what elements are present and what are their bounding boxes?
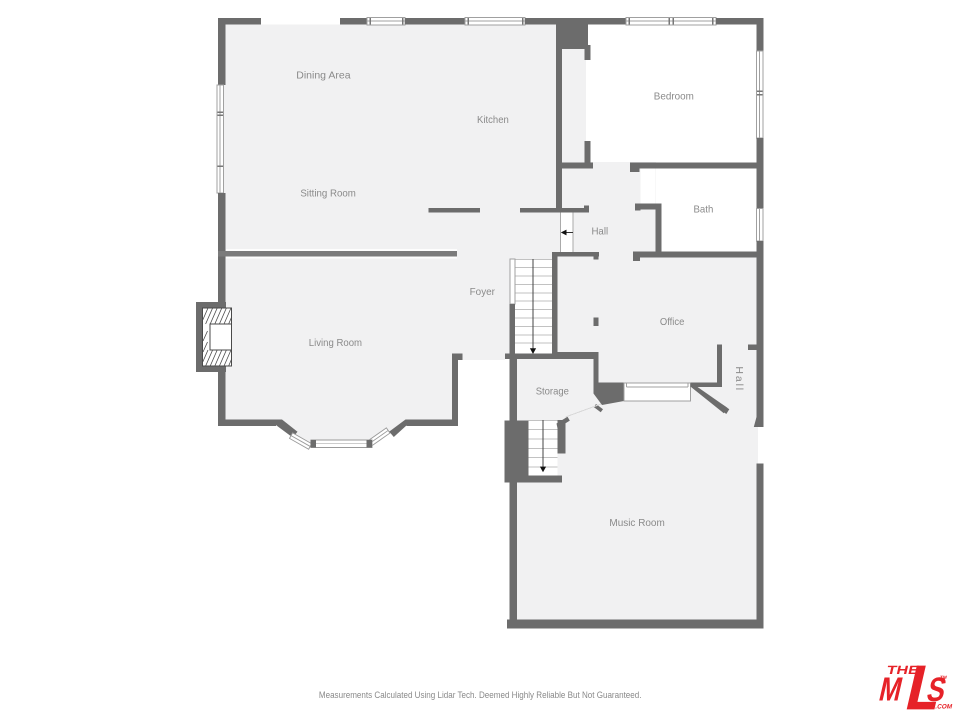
svg-text:Measurements Calculated Using: Measurements Calculated Using Lidar Tech… (319, 690, 642, 700)
svg-text:.COM: .COM (935, 703, 953, 710)
svg-text:Living Room: Living Room (309, 337, 363, 349)
svg-text:Hall: Hall (733, 366, 745, 392)
svg-text:TM: TM (939, 675, 947, 681)
svg-text:Music Room: Music Room (609, 517, 665, 529)
svg-text:Kitchen: Kitchen (477, 114, 509, 126)
svg-text:Foyer: Foyer (470, 286, 496, 298)
svg-text:Dining Area: Dining Area (296, 70, 350, 82)
svg-text:Bath: Bath (694, 204, 714, 216)
svg-text:Sitting Room: Sitting Room (300, 188, 356, 200)
svg-text:Storage: Storage (536, 386, 569, 398)
svg-text:Hall: Hall (591, 226, 608, 238)
svg-text:Bedroom: Bedroom (654, 90, 694, 102)
svg-text:Office: Office (660, 316, 685, 328)
